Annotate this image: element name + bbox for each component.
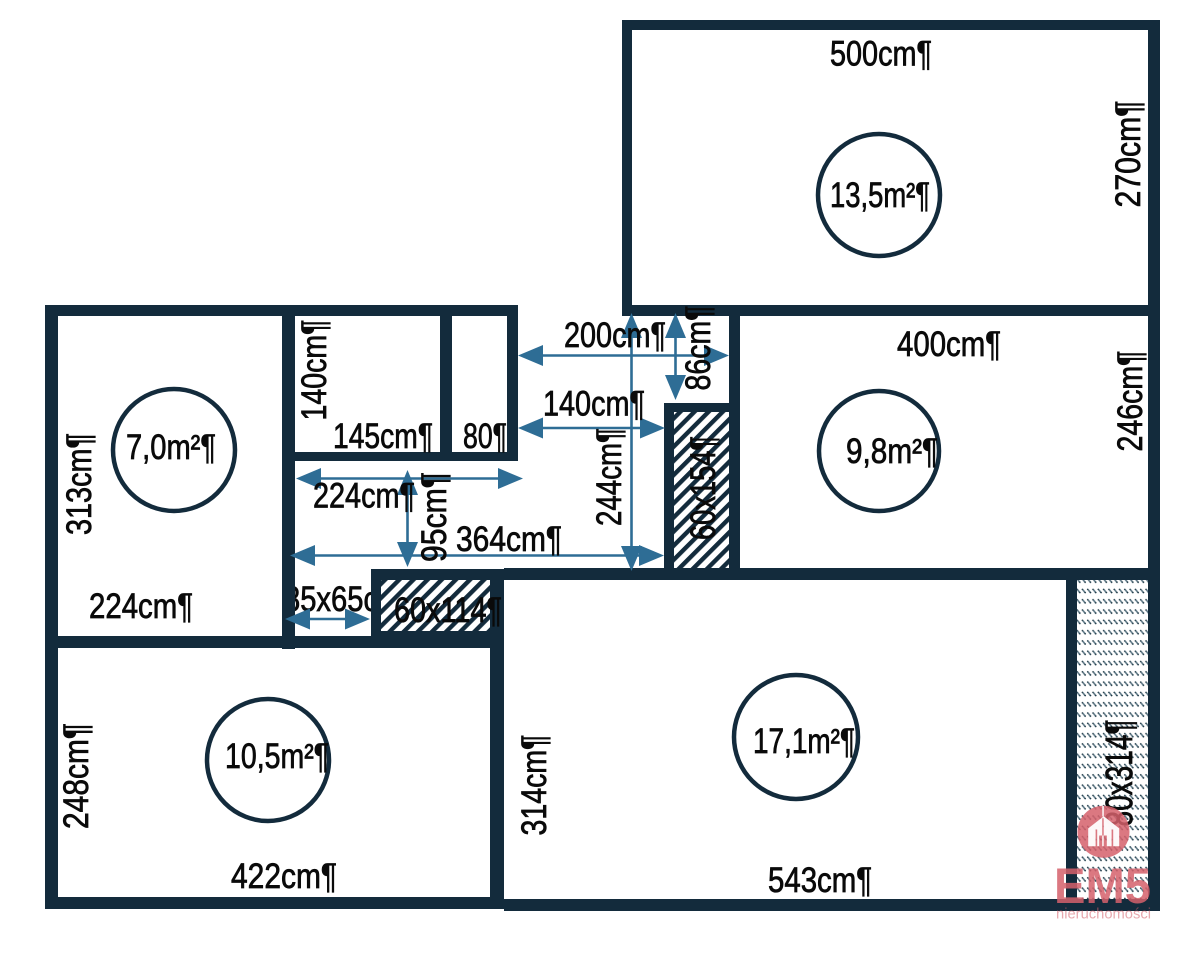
svg-text:10,5m²¶: 10,5m²¶ bbox=[225, 737, 329, 776]
svg-text:80¶: 80¶ bbox=[463, 417, 507, 456]
svg-text:140cm¶: 140cm¶ bbox=[543, 385, 645, 424]
svg-text:248cm¶: 248cm¶ bbox=[57, 723, 96, 829]
svg-text:224cm¶: 224cm¶ bbox=[313, 477, 415, 516]
svg-text:270cm¶: 270cm¶ bbox=[1109, 101, 1148, 208]
svg-text:313cm¶: 313cm¶ bbox=[60, 433, 99, 535]
svg-text:543cm¶: 543cm¶ bbox=[768, 861, 872, 900]
svg-text:224cm¶: 224cm¶ bbox=[89, 587, 193, 626]
svg-text:200cm¶: 200cm¶ bbox=[564, 316, 666, 355]
svg-text:17,1m²¶: 17,1m²¶ bbox=[753, 722, 855, 761]
svg-text:140cm¶: 140cm¶ bbox=[295, 320, 334, 421]
svg-text:nieruchomości: nieruchomości bbox=[1056, 906, 1151, 923]
svg-text:7,0m²¶: 7,0m²¶ bbox=[126, 428, 216, 467]
svg-text:86cm¶: 86cm¶ bbox=[679, 306, 718, 391]
svg-text:364cm¶: 364cm¶ bbox=[456, 520, 562, 559]
svg-text:145cm¶: 145cm¶ bbox=[333, 417, 433, 456]
svg-text:244cm¶: 244cm¶ bbox=[590, 428, 629, 526]
svg-text:422cm¶: 422cm¶ bbox=[231, 857, 337, 896]
svg-text:95cm¶: 95cm¶ bbox=[415, 472, 454, 562]
svg-text:500cm¶: 500cm¶ bbox=[830, 35, 932, 74]
svg-text:60x154¶: 60x154¶ bbox=[684, 436, 723, 540]
svg-text:60x114¶: 60x114¶ bbox=[394, 591, 502, 630]
svg-text:314cm¶: 314cm¶ bbox=[515, 735, 554, 836]
svg-text:13,5m²¶: 13,5m²¶ bbox=[830, 176, 930, 215]
svg-text:400cm¶: 400cm¶ bbox=[897, 325, 1001, 364]
svg-text:9,8m²¶: 9,8m²¶ bbox=[846, 432, 938, 471]
svg-text:246cm¶: 246cm¶ bbox=[1111, 351, 1150, 452]
